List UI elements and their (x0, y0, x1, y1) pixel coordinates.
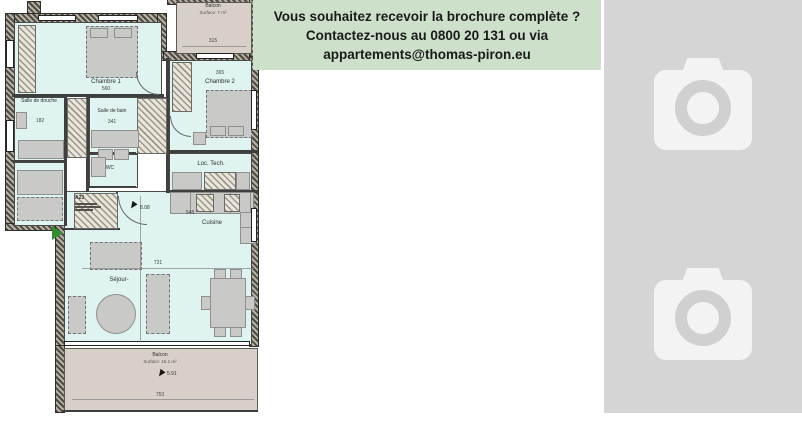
banner-line-1: Vous souhaitez recevoir la brochure comp… (274, 7, 581, 26)
photo-panel (604, 0, 802, 413)
pillow (210, 126, 226, 136)
room-label-salle-de-bain: Salle de bain (98, 109, 127, 115)
dimension-label: 315 (209, 39, 217, 45)
surface-label: Surface: 15.1 m² (143, 360, 176, 365)
unit-label: A23 (75, 195, 84, 201)
sink (16, 112, 27, 129)
photo-placeholder-1[interactable] (604, 0, 802, 206)
dimension-label: 548 (186, 211, 194, 217)
page: Balcon Surface: 7 m² 315 Chambre 1 560 3… (0, 0, 802, 421)
room-label-balcon-bottom: Balcon (152, 353, 167, 359)
dimension-label: 365 (216, 71, 224, 77)
camera-icon (654, 268, 752, 360)
room-label-sejour: Séjour- (109, 277, 128, 284)
nightstand (193, 132, 206, 145)
pillow (114, 28, 132, 38)
room-label-chambre1: Chambre 1 (91, 79, 121, 86)
window (98, 15, 138, 21)
wardrobe (18, 25, 36, 93)
pillow (90, 28, 108, 38)
dining-table (210, 278, 246, 328)
room-label-cuisine: Cuisine (202, 220, 222, 227)
hob (224, 194, 240, 212)
chair (214, 269, 226, 279)
dimension-line (82, 268, 254, 269)
hob (196, 194, 214, 212)
window-wall (64, 341, 250, 346)
shower (18, 140, 64, 159)
wall (6, 14, 164, 22)
fine-print (75, 206, 101, 208)
chair (201, 296, 211, 310)
window (6, 120, 14, 152)
bathtub (91, 130, 139, 148)
wardrobe (172, 62, 192, 112)
toilet (91, 157, 106, 177)
partition (12, 160, 66, 162)
window (196, 53, 234, 59)
partition (88, 186, 136, 188)
banner-line-2: Contactez-nous au 0800 20 131 ou via (306, 26, 548, 45)
cabinet (68, 296, 86, 334)
round-table (96, 294, 136, 334)
sink (114, 149, 129, 160)
room-label-balcon-top: Balcon (205, 4, 220, 10)
dimension-label: 341 (108, 120, 116, 126)
room-label-chambre2: Chambre 2 (205, 79, 235, 86)
fine-print (75, 209, 93, 211)
dimension-label: 753 (156, 393, 164, 399)
storage-unit (17, 197, 63, 221)
chair (214, 327, 226, 337)
camera-lens (675, 80, 731, 136)
dimension-label: 560 (102, 87, 110, 93)
window (251, 208, 257, 242)
chair (230, 269, 242, 279)
wall (28, 2, 40, 14)
partition (166, 150, 258, 153)
dimension-label: 8.08 (140, 205, 150, 211)
appliance (172, 172, 202, 190)
dimension-label: 182 (36, 119, 44, 125)
room-label-loc-tech: Loc. Tech. (197, 161, 224, 168)
room-label-salle-de-douche: Salle de douche (21, 99, 57, 105)
chair (230, 327, 242, 337)
pillow (228, 126, 244, 136)
fine-print (75, 203, 97, 205)
camera-icon (654, 58, 752, 150)
banner-line-3: appartements@thomas-piron.eu (323, 45, 530, 64)
closet (137, 98, 167, 154)
technical-unit (204, 172, 236, 190)
storage-unit (17, 170, 63, 195)
wall (56, 224, 64, 348)
entrance-arrow-icon (52, 226, 63, 240)
dimension-label: 5.91 (167, 371, 177, 377)
sideboard (146, 274, 170, 334)
dimension-line (72, 399, 254, 400)
chair (245, 296, 255, 310)
photo-placeholder-2[interactable] (604, 206, 802, 413)
window (38, 15, 76, 21)
room-label-wc: WC (106, 166, 114, 172)
wall (56, 346, 64, 412)
dimension-line (140, 196, 141, 342)
brochure-banner: Vous souhaitez recevoir la brochure comp… (253, 0, 601, 70)
appliance (236, 172, 250, 190)
sofa (90, 242, 142, 270)
dimension-label: 721 (154, 261, 162, 267)
camera-lens (675, 290, 731, 346)
balcony-edge (62, 410, 258, 412)
closet (67, 98, 87, 158)
window (6, 40, 14, 68)
window (251, 90, 257, 130)
dimension-line (182, 46, 246, 47)
surface-label: Surface: 7 m² (199, 11, 226, 16)
